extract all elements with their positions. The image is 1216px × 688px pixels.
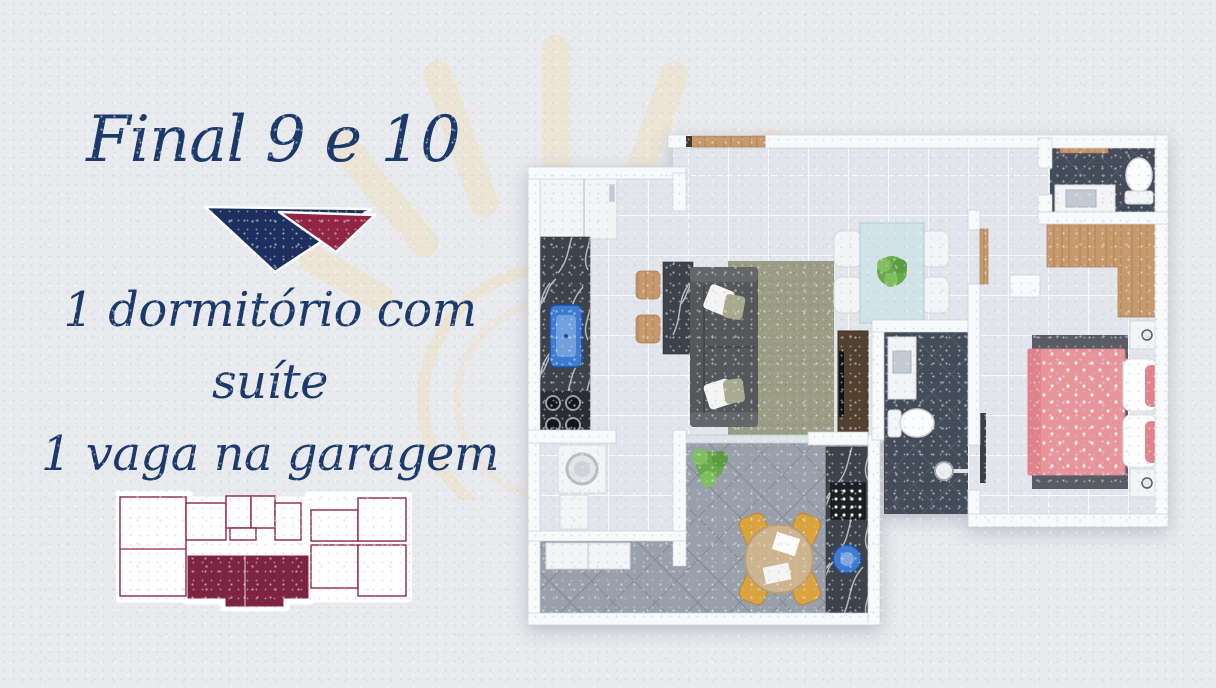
bar-stool [636,315,660,343]
dining-chair [834,277,862,313]
tv-stand [838,331,868,437]
bbq-counter [826,447,868,613]
toilet [1125,158,1153,204]
building-keyplan [116,490,412,612]
floor-plan [528,135,1168,627]
tv [839,351,844,417]
keyplan-highlight-units [188,556,308,606]
double-bed [1028,349,1166,481]
round-table [745,525,813,593]
marketing-poster: Final 9 e 10 1 dormitório com suíte 1 va… [0,0,1216,688]
feature-dormitory: 1 dormitório com suíte [0,274,540,418]
dining-chair [921,231,949,267]
entry-door [691,136,765,147]
kitchen-island [663,262,693,354]
curtain [980,413,986,483]
page-title: Final 9 e 10 [43,100,503,180]
sofa [690,267,758,427]
dining-chair [921,277,949,313]
dining-chair [834,231,862,267]
grill [831,483,865,519]
fridge [540,177,617,239]
bedroom-door [980,229,988,284]
feature-parking: 1 vaga na garagem [0,418,540,490]
bar-stool [636,271,660,299]
logo-triangle-icon [203,202,379,278]
toilet [888,409,934,437]
water-heater [560,495,588,529]
